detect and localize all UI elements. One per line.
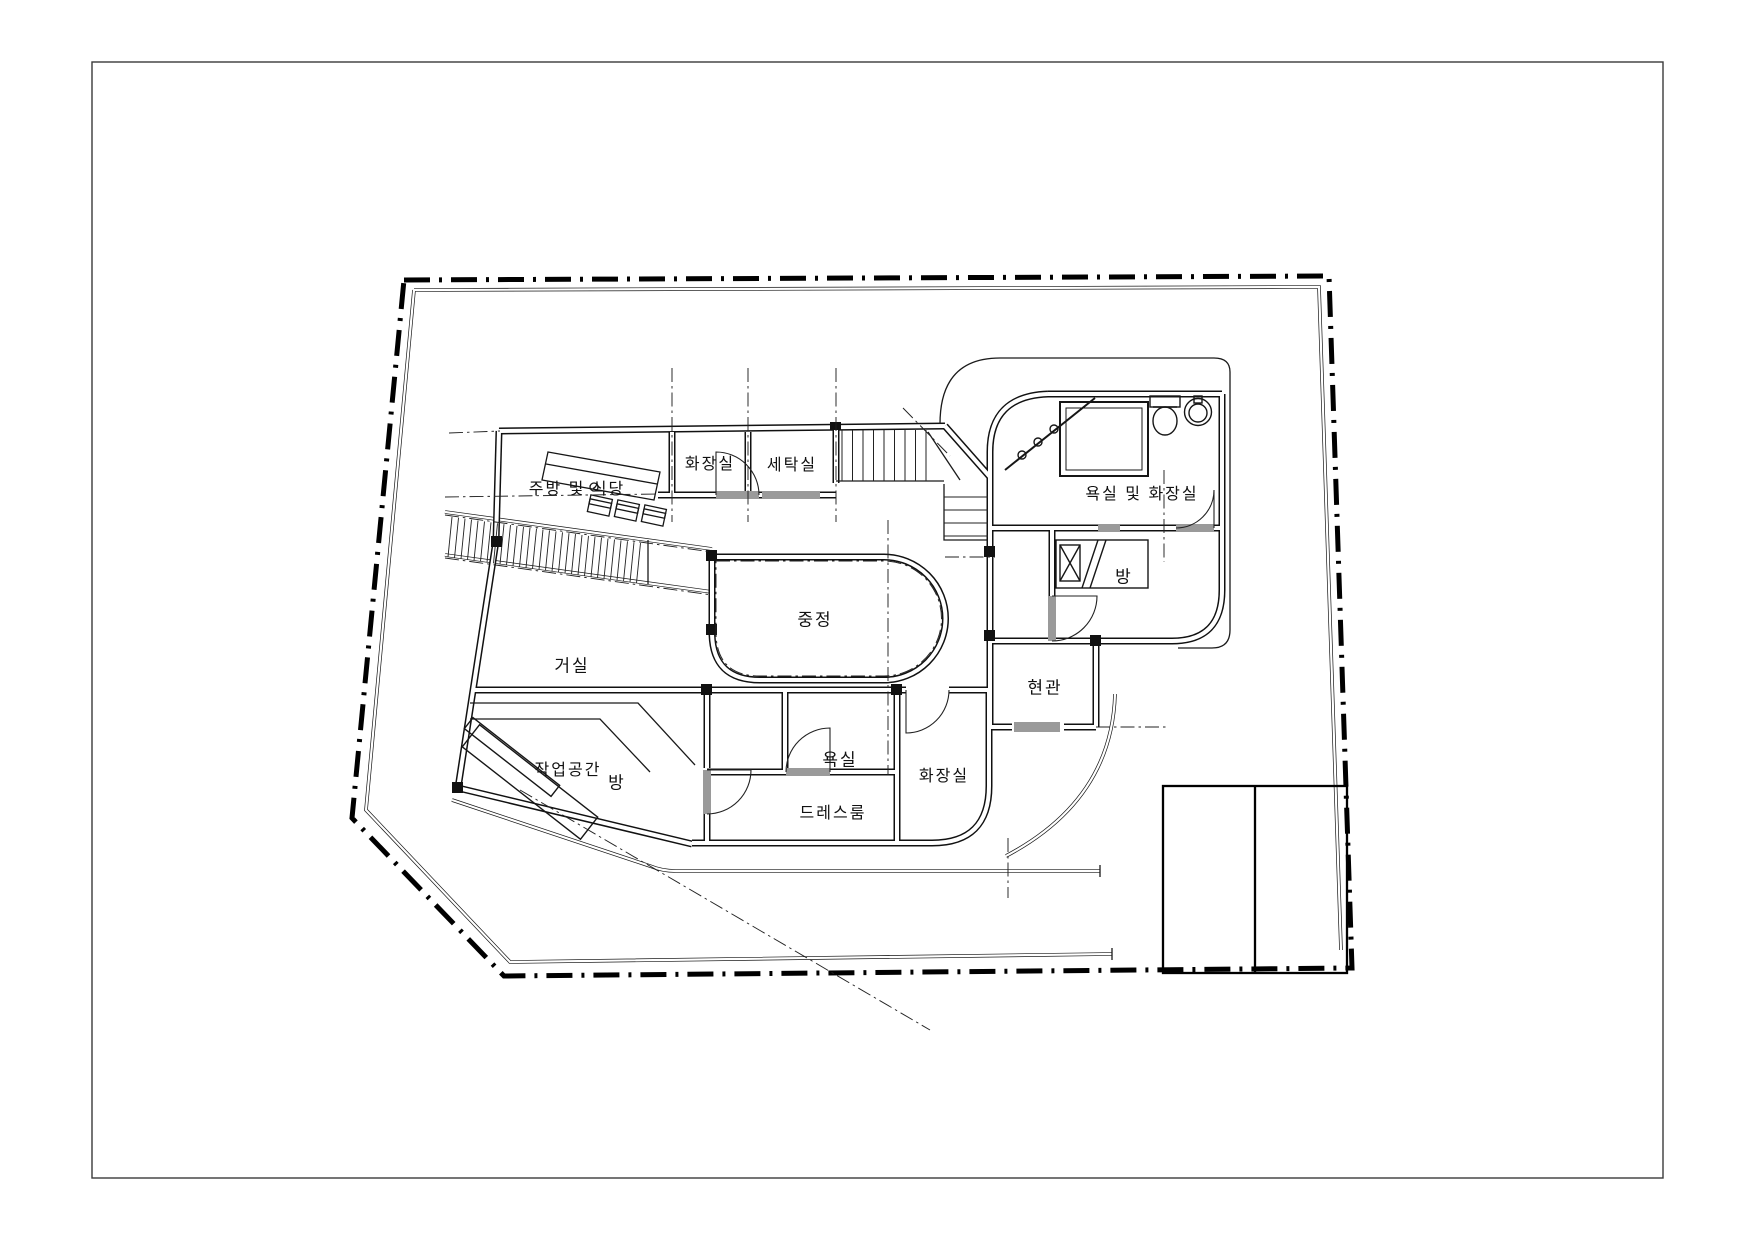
room-label-bathroom-lower: 욕실 (822, 746, 857, 771)
site-boundary-inner-and-terrace (366, 287, 1341, 962)
door-arc-icon (707, 770, 751, 814)
door-arc-icon (906, 690, 949, 733)
toilet-icon (1150, 396, 1180, 435)
pillow-icon (1060, 545, 1080, 581)
round-sink-icon (1185, 396, 1212, 426)
bed-icon (1056, 540, 1148, 588)
room-label-toilet-lower: 화장실 (919, 762, 969, 786)
site-boundary-inner-and-terrace (366, 287, 1341, 962)
room-label-bedroom-right: 방 (1115, 563, 1133, 588)
sheet-border (92, 62, 1663, 1178)
room-label-dressing-room: 드레스룸 (800, 799, 867, 823)
room-label-living-room: 거실 (554, 652, 589, 677)
room-label-bath-and-toilet: 욕실 및 화장실 (1085, 480, 1198, 504)
room-label-courtyard: 중정 (797, 606, 832, 631)
room-label-laundry: 세탁실 (767, 451, 817, 475)
floor-plan-drawing (0, 0, 1755, 1240)
garage-outline (1163, 786, 1347, 973)
corner-shower-screen-icon (1005, 398, 1095, 470)
bathtub-icon (1060, 402, 1148, 476)
room-label-kitchen-dining: 주방 및 식당 (529, 475, 626, 499)
room-label-workspace: 작업공간 (535, 756, 602, 780)
floor-plan-sheet: 화장실세탁실주방 및 식당욕실 및 화장실방중정거실현관작업공간방욕실화장실드레… (0, 0, 1755, 1240)
room-label-entrance: 현관 (1027, 674, 1062, 699)
room-label-bedroom-lower: 방 (608, 769, 626, 794)
door-arc-icon (1052, 596, 1097, 641)
room-label-toilet-upper: 화장실 (685, 450, 735, 474)
